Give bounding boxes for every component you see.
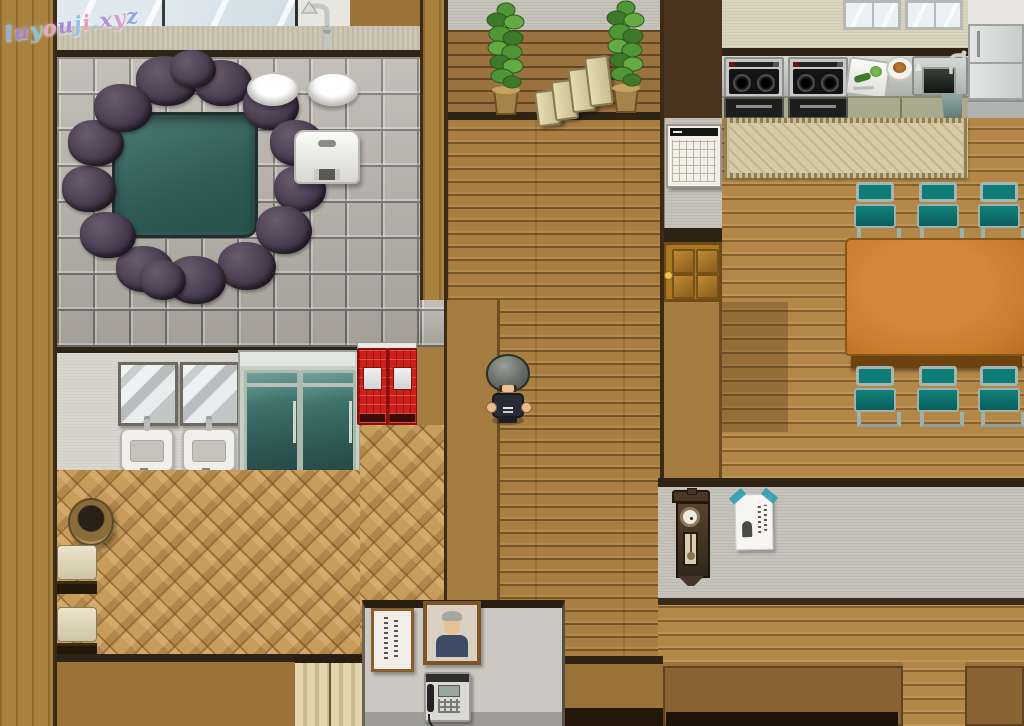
washroom-sink[interactable] [120,428,174,472]
fridge-handle [977,31,980,57]
player-character[interactable] [486,352,530,426]
notice-figure [742,521,752,537]
clock-wall-base [658,598,1024,605]
potted-plant: Potted plant [480,2,532,116]
wall-phone[interactable] [424,672,471,722]
laundry-basket[interactable] [68,498,114,546]
cutting-board[interactable] [845,56,892,99]
bath-right-wall [420,0,447,300]
hot-spring-rock [170,50,216,88]
cabinet-glass-door[interactable] [300,370,356,482]
notice-text-column [758,503,762,533]
cabinet-top-band [240,352,355,366]
knife-icon [854,86,874,90]
noren-curtain[interactable] [295,655,362,726]
doorway-slot[interactable] [666,712,898,726]
phone-screen [438,685,460,697]
left-wall [0,0,57,726]
divider-wall-right [663,302,722,478]
lower-right-floor[interactable] [658,605,1024,662]
calendar-header [670,128,718,136]
fridge-drawer [968,100,1024,120]
character-feet [499,416,517,423]
game-viewport[interactable]: Shower fixture [0,0,1024,726]
kitchen-window [905,0,963,30]
dining-chair [915,366,961,424]
washroom-sink[interactable] [182,428,236,472]
character-hand [486,402,497,413]
character-face [499,385,517,392]
mirror [118,362,178,426]
dining-table [845,238,1024,356]
hot-spring-rock [140,260,186,300]
calendar-grid [672,140,716,182]
sign-text-column [384,617,388,659]
kitchen-window [843,0,901,30]
refrigerator[interactable] [968,24,1024,100]
fridge-seam [970,62,1022,64]
hot-spring-rock [94,84,152,132]
oven-drawer [788,97,848,119]
cabinet-glass-door[interactable] [244,370,300,482]
bath-tile-floor-notch [420,300,447,347]
faucet-icon [946,50,968,76]
wooden-door[interactable] [663,242,722,302]
vegetable-leaf [869,65,882,78]
dining-chair [976,366,1022,424]
wall-clock[interactable] [672,490,710,590]
shower-icon[interactable]: Shower fixture [297,0,349,50]
wash-basin[interactable] [307,72,359,106]
locker-cabinet[interactable] [238,350,361,486]
dining-chair [852,366,898,424]
hot-spring-rock [218,242,276,290]
vending-machine[interactable] [387,348,418,425]
notice-text-column [764,505,767,531]
vending-machine[interactable] [357,348,388,425]
framed-portrait[interactable] [423,601,481,665]
phone-handset [427,684,434,712]
fridge-wall [968,0,1024,24]
tatami-rug [724,118,968,178]
doorway-slot[interactable] [565,708,663,726]
wall-shadow [722,302,788,432]
food [893,62,906,73]
stove[interactable] [724,57,784,99]
stove[interactable] [788,57,848,99]
clock-wall-trim [658,478,1024,487]
oven-drawer [724,97,784,119]
food-plate [886,56,914,81]
hot-spring-water[interactable] [112,112,258,238]
dining-chair [915,182,961,240]
wall-calendar[interactable] [666,124,722,188]
hot-spring-rock [80,212,136,258]
bath-stool[interactable] [294,130,360,184]
wall-piece [417,347,447,425]
phone-top [426,674,469,682]
dining-chair [852,182,898,240]
cucumber [853,72,871,83]
wash-basin[interactable] [247,72,299,106]
soap [915,62,922,71]
bottom-plank-strip [903,662,965,726]
clock-wall [658,487,1024,598]
changing-bench [57,607,97,659]
mirror [180,362,240,426]
recessed-panel [965,666,1024,726]
portrait-suit [436,635,468,657]
kitchen-wall-trim [722,48,968,56]
kitchen-sink[interactable] [912,56,968,96]
phone-keypad[interactable] [438,699,460,713]
taped-notice[interactable] [735,494,774,551]
sign-text-column [394,619,398,657]
changing-bench [57,545,97,597]
window-mullion [162,0,165,28]
hot-spring-rock [62,166,116,212]
phone-cord [428,714,442,726]
potted-plant: Potted plant [600,0,652,114]
door-lintel [663,228,722,242]
portrait-hair [442,611,462,621]
hallway-bottom-trim [565,656,663,664]
bath-ledge-trim [57,50,447,57]
divider-wall-left [447,300,500,600]
framed-sign[interactable] [371,608,414,672]
dining-chair [976,182,1022,240]
door-knob [664,271,673,280]
kitchen-left-wall [663,0,722,118]
character-hand [521,402,532,413]
changing-room-floor [57,470,360,660]
